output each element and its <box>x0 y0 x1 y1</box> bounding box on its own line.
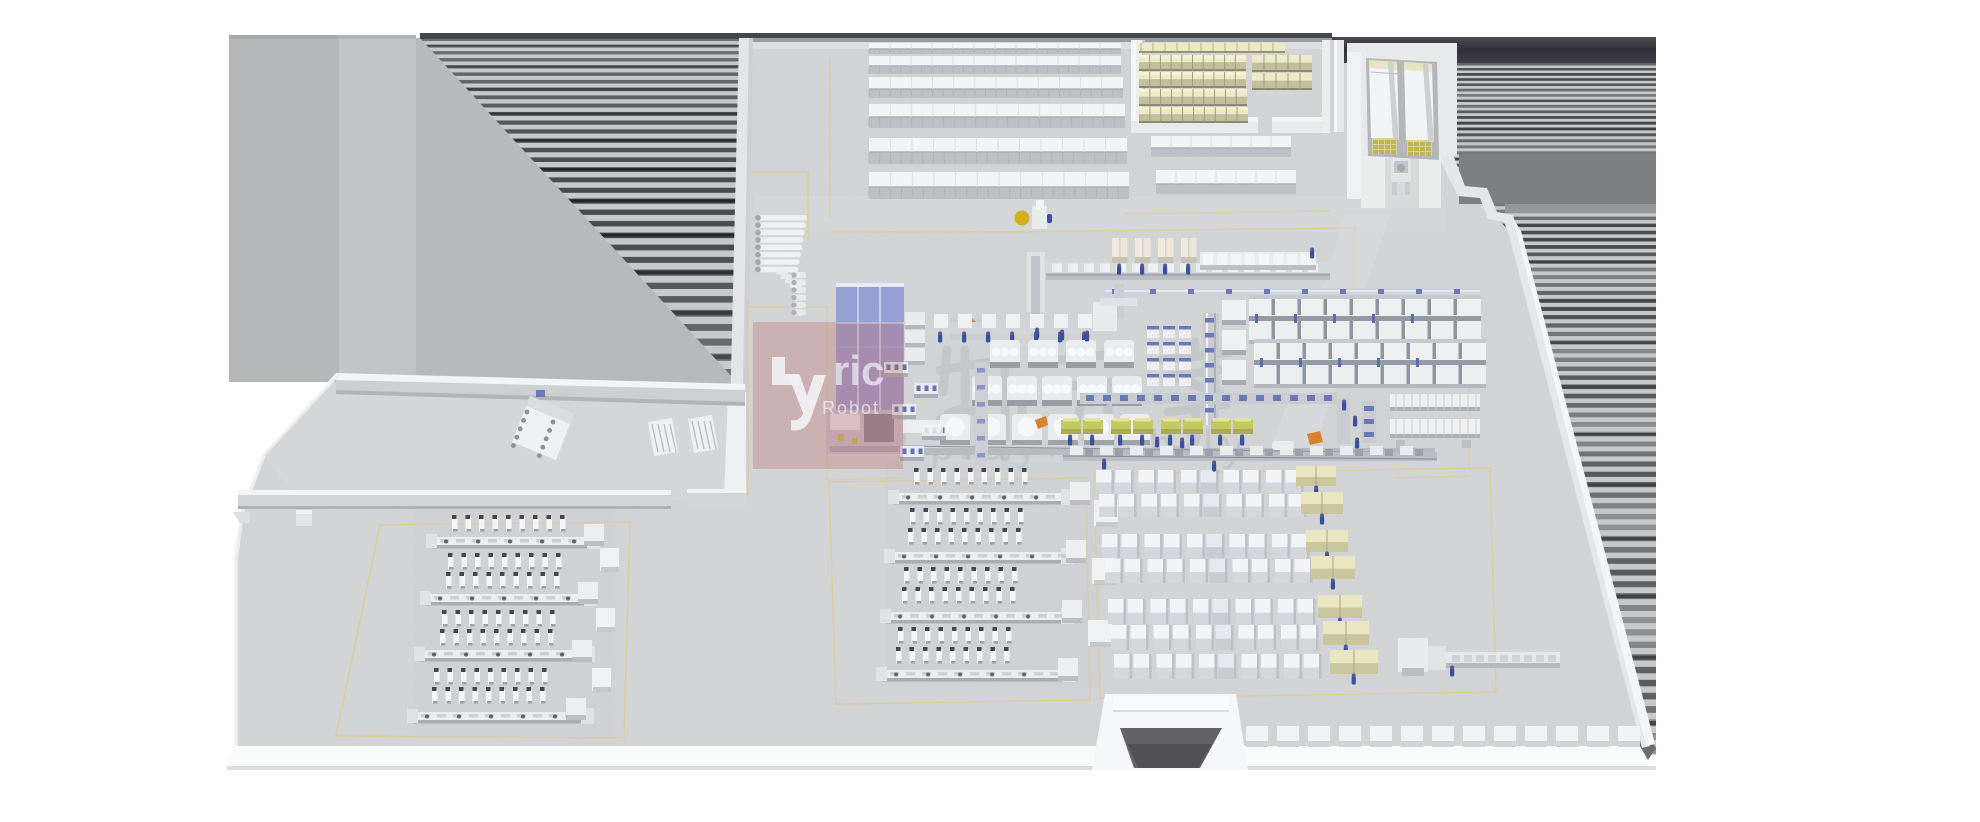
svg-text:ric: ric <box>833 347 884 394</box>
svg-text:Robot: Robot <box>822 398 880 418</box>
